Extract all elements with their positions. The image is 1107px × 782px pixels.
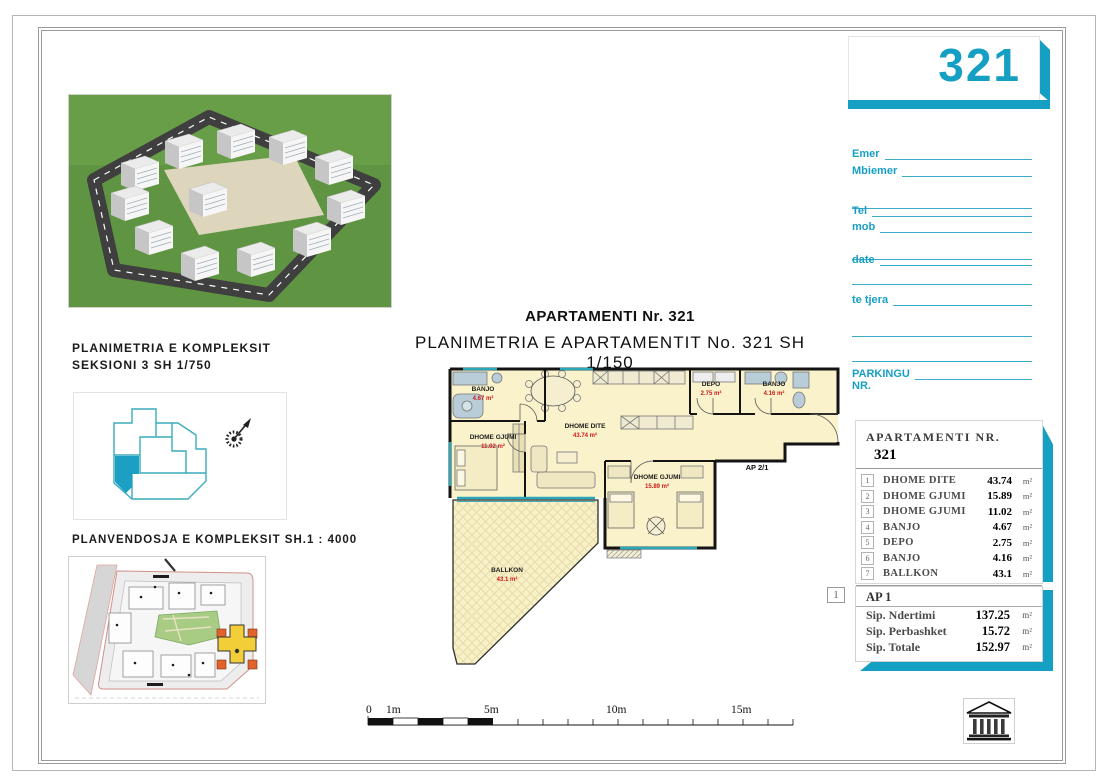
- row-index: 1: [861, 474, 874, 487]
- row-room: BANJO: [883, 522, 970, 533]
- summary-row: Sip. Ndertimi137.25m²: [856, 607, 1042, 623]
- summary-index-box: 1: [827, 587, 845, 603]
- drawing-sheet: PLANIMETRIA E KOMPLEKSIT SEKSIONI 3 SH 1…: [0, 0, 1107, 782]
- summary-value: 152.97: [962, 640, 1010, 655]
- blank-field-line: [852, 271, 1032, 285]
- name-field-line: [885, 146, 1032, 160]
- row-index: 4: [861, 521, 874, 534]
- parking-label: PARKINGU: [852, 368, 910, 380]
- room-area-gjumi-left: 11.02 m²: [481, 443, 505, 450]
- table-row: 5DEPO2.75m²: [856, 535, 1042, 551]
- summary-label: Sip. Totale: [866, 640, 962, 655]
- area-table: APARTAMENTI NR. 321 1DHOME DITE43.74m² 2…: [855, 420, 1043, 584]
- row-unit: m²: [1012, 553, 1032, 563]
- row-unit: m²: [1012, 491, 1032, 501]
- table-row: 6BANJO4.16m²: [856, 551, 1042, 567]
- room-area-dite: 43.74 m²: [573, 432, 597, 439]
- row-unit: m²: [1012, 522, 1032, 532]
- row-unit: m²: [1012, 476, 1032, 486]
- date-field-line: [880, 252, 1032, 266]
- row-room: DEPO: [883, 537, 970, 548]
- row-index: 2: [861, 490, 874, 503]
- complex-plan-title-line1: PLANIMETRIA E KOMPLEKSIT: [72, 340, 271, 357]
- summary-unit: m²: [1010, 610, 1032, 620]
- parking-nr-label: NR.: [852, 380, 871, 392]
- section-key-plan: [73, 392, 287, 520]
- room-area-banjo-2: 4.16 m²: [764, 390, 785, 397]
- apartment-number: 321: [938, 38, 1021, 92]
- area-table-header: APARTAMENTI NR. 321: [856, 421, 1042, 469]
- row-index: 7: [861, 567, 874, 580]
- summary-title: AP 1: [856, 587, 1042, 607]
- row-room: DHOME GJUMI: [883, 491, 970, 502]
- room-area-banjo-1: 4.67 m²: [473, 395, 494, 402]
- row-room: DHOME GJUMI: [883, 506, 970, 517]
- complex-3d-render-image: [69, 95, 391, 307]
- room-area-depo: 2.75 m²: [701, 390, 722, 397]
- north-arrow-icon: [165, 559, 175, 571]
- architect-logo: [963, 698, 1015, 744]
- balcony-area: [453, 500, 598, 664]
- temple-logo-icon: [966, 701, 1012, 741]
- room-area-gjumi-right: 15.89 m²: [645, 483, 669, 490]
- date-label: date: [852, 254, 875, 266]
- area-table-title: APARTAMENTI NR.: [866, 430, 1000, 444]
- summary-value: 137.25: [962, 608, 1010, 623]
- row-unit: m²: [1012, 538, 1032, 548]
- summary-label: Sip. Perbashket: [866, 624, 962, 639]
- parking-field-line: [915, 366, 1032, 380]
- row-area: 2.75: [970, 537, 1012, 549]
- summary-box: AP 1 Sip. Ndertimi137.25m² Sip. Perbashk…: [855, 586, 1043, 662]
- summary-unit: m²: [1010, 626, 1032, 636]
- mob-label: mob: [852, 221, 875, 233]
- row-unit: m²: [1012, 507, 1032, 517]
- room-label-ballkon: BALLKON: [491, 567, 523, 574]
- row-area: 43.74: [970, 475, 1012, 487]
- summary-label: Sip. Ndertimi: [866, 608, 962, 623]
- summary-row: Sip. Perbashket15.72m²: [856, 623, 1042, 639]
- row-unit: m²: [1012, 569, 1032, 579]
- scale-label-10m: 10m: [606, 704, 627, 716]
- apartment-title: APARTAMENTI Nr. 321: [390, 308, 830, 325]
- row-index: 6: [861, 552, 874, 565]
- room-label-dite: DHOME DITE: [565, 423, 606, 430]
- blank-field-line: [852, 348, 1032, 362]
- table-row: 7BALLKON43.1m²: [856, 566, 1042, 582]
- apartment-number-header: 321: [845, 32, 1057, 118]
- area-table-rows: 1DHOME DITE43.74m² 2DHOME GJUMI15.89m² 3…: [856, 469, 1042, 582]
- row-area: 4.16: [970, 552, 1012, 564]
- table-row: 4BANJO4.67m²: [856, 520, 1042, 536]
- section-key-plan-image: [74, 393, 286, 519]
- scale-bar: 0 1m 5m 10m 15m: [356, 702, 806, 732]
- summary-value: 15.72: [962, 624, 1010, 639]
- mob-field-line: [880, 219, 1032, 233]
- row-area: 15.89: [970, 490, 1012, 502]
- name-label: Emer: [852, 148, 880, 160]
- highlighted-site-building: [217, 625, 257, 669]
- tel-field-line: [872, 203, 1032, 217]
- area-table-number: 321: [874, 447, 897, 463]
- row-room: BALLKON: [883, 568, 970, 579]
- scale-label-5m: 5m: [484, 704, 499, 716]
- summary-row: Sip. Totale152.97m²: [856, 639, 1042, 655]
- table-row: 1DHOME DITE43.74m²: [856, 473, 1042, 489]
- row-room: DHOME DITE: [883, 475, 970, 486]
- table-row: 2DHOME GJUMI15.89m²: [856, 489, 1042, 505]
- room-label-gjumi-left: DHOME GJUMI: [470, 434, 517, 441]
- room-label-depo: DEPO: [702, 381, 720, 388]
- compass-icon: [227, 418, 251, 446]
- complex-3d-render: [68, 94, 392, 308]
- room-area-ballkon: 43.1 m²: [497, 576, 518, 583]
- scale-label-1m: 1m: [386, 704, 401, 716]
- scale-label-0: 0: [366, 704, 372, 716]
- tel-label: Tel: [852, 205, 867, 217]
- row-area: 11.02: [970, 506, 1012, 518]
- accent-bar-bottom: [848, 100, 1050, 109]
- room-label-banjo-2: BANJO: [763, 381, 786, 388]
- site-plan-image: [69, 557, 265, 703]
- other-label: te tjera: [852, 294, 888, 306]
- blank-field-line: [852, 323, 1032, 337]
- site-plan-title: PLANVENDOSJA E KOMPLEKSIT SH.1 : 4000: [72, 532, 357, 549]
- complex-plan-title: PLANIMETRIA E KOMPLEKSIT SEKSIONI 3 SH 1…: [72, 340, 271, 374]
- accent-bar-right: [1040, 40, 1050, 102]
- site-plan: [68, 556, 266, 704]
- surname-label: Mbiemer: [852, 165, 897, 177]
- room-label-banjo-1: BANJO: [472, 386, 495, 393]
- row-area: 43.1: [970, 568, 1012, 580]
- room-label-gjumi-right: DHOME GJUMI: [634, 474, 681, 481]
- row-index: 5: [861, 536, 874, 549]
- complex-plan-title-line2: SEKSIONI 3 SH 1/750: [72, 357, 271, 374]
- scale-label-15m: 15m: [731, 704, 752, 716]
- summary-unit: m²: [1010, 642, 1032, 652]
- unit-marker-label: AP 2/1: [746, 463, 769, 472]
- row-area: 4.67: [970, 521, 1012, 533]
- other-field-line: [893, 292, 1032, 306]
- row-index: 3: [861, 505, 874, 518]
- apartment-floor-plan: BANJO 4.67 m² DHOME GJUMI 11.02 m² DHOME…: [445, 364, 845, 674]
- surname-field-line: [902, 163, 1032, 177]
- row-room: BANJO: [883, 553, 970, 564]
- table-row: 3DHOME GJUMI11.02m²: [856, 504, 1042, 520]
- contact-form: Emer Mbiemer Tel mob date te tjera PARKI…: [852, 140, 1032, 406]
